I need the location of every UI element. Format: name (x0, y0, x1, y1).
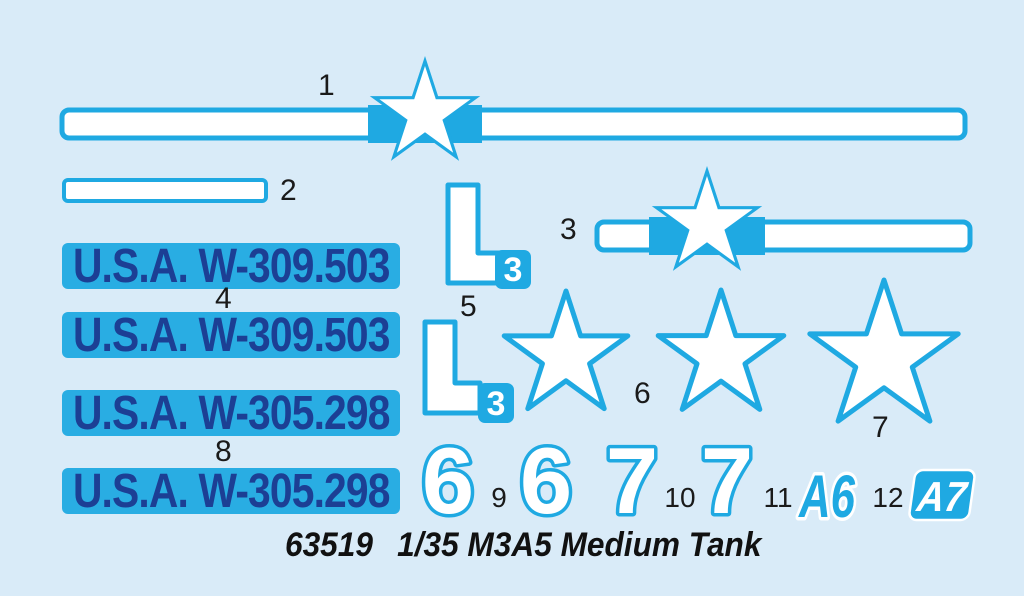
part-label-2: 2 (280, 176, 297, 206)
number-decals: 6 9 6 7 10 7 11 A6 12 A7 (405, 438, 1024, 540)
l-bracket-shape-2 (425, 322, 480, 413)
stripe-star-decal-3 (555, 155, 985, 280)
footer-title: 63519 1/35 M3A5 Medium Tank (285, 526, 761, 565)
registration-plate-305-a: U.S.A. W-305.298 (62, 390, 400, 436)
kit-number: 63519 (285, 526, 373, 565)
registration-text: U.S.A. W-305.298 (73, 390, 390, 436)
l-bracket-shape-1 (448, 185, 500, 283)
registration-plate-309-b: U.S.A. W-309.503 (62, 312, 400, 358)
part-label-4: 4 (215, 284, 232, 314)
star-decals (495, 275, 985, 440)
number-decal-7-a: 7 (606, 438, 658, 533)
part-label-5: 5 (460, 292, 477, 322)
stripe-star-decal-1 (50, 40, 980, 170)
decal-sheet: 1 2 3 U.S.A. W-309.503 4 U.S.A. W-309.50… (0, 0, 1024, 596)
registration-text: U.S.A. W-309.503 (73, 312, 390, 358)
part-label-12: 12 (872, 482, 903, 513)
number-decal-7-b: 7 (701, 438, 753, 533)
part-label-3: 3 (560, 215, 577, 245)
registration-text: U.S.A. W-305.298 (73, 468, 390, 514)
registration-plate-305-b: U.S.A. W-305.298 (62, 468, 400, 514)
part-label-8: 8 (215, 437, 232, 467)
number-decal-6-a: 6 (422, 438, 474, 533)
a7-text: A7 (914, 473, 972, 520)
kit-name: 1/35 M3A5 Medium Tank (397, 526, 761, 565)
code-decal-a7: A7 (908, 470, 975, 520)
stripe-decal-2 (62, 178, 268, 203)
star-decal-large (810, 280, 958, 421)
part-label-6: 6 (634, 379, 651, 409)
number-decal-6-b: 6 (520, 438, 572, 533)
part-label-10: 10 (664, 482, 695, 513)
code-decal-a6: A6 (798, 463, 856, 530)
part-label-9: 9 (491, 482, 507, 513)
part-label-1: 1 (318, 71, 335, 101)
star-decal-medium (658, 290, 784, 409)
stripe-bar (62, 110, 965, 138)
star-decal-small (504, 291, 628, 409)
part-label-11: 11 (763, 482, 792, 513)
